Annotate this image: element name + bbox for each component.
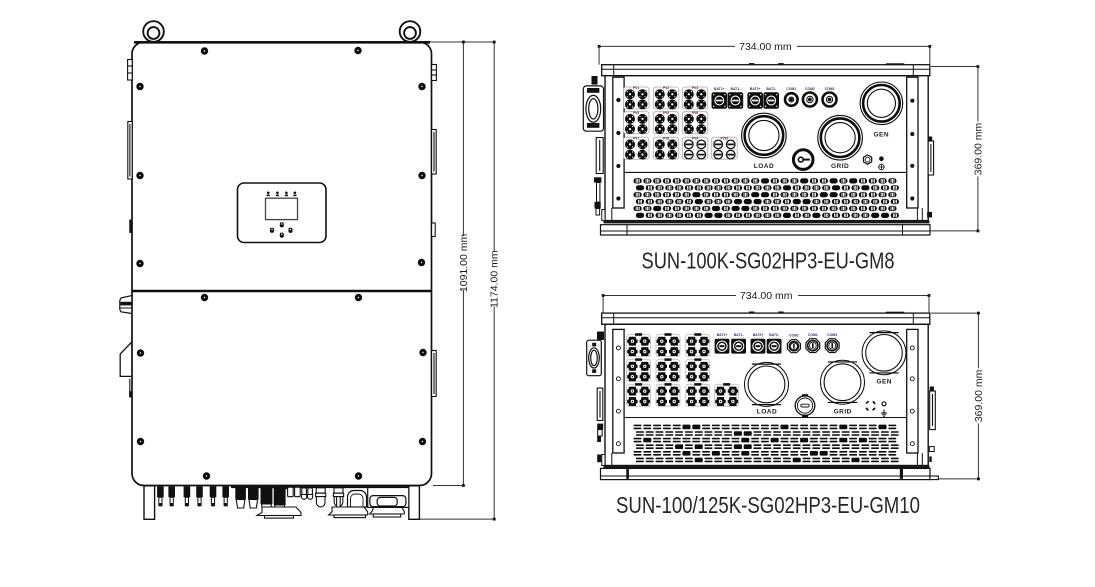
svg-text:BAT2-: BAT2- xyxy=(769,333,779,337)
svg-text:PV5: PV5 xyxy=(663,111,669,115)
svg-text:COM3: COM3 xyxy=(827,333,837,337)
svg-text:PV1: PV1 xyxy=(633,86,639,90)
svg-text:PV4: PV4 xyxy=(633,111,639,115)
svg-text:PV3: PV3 xyxy=(692,86,698,90)
svg-text:PV9: PV9 xyxy=(692,136,698,140)
svg-text:GRID: GRID xyxy=(831,163,849,170)
svg-text:PV2: PV2 xyxy=(663,86,669,90)
svg-text:SUN-100/125K-SG02HP3-EU-GM10: SUN-100/125K-SG02HP3-EU-GM10 xyxy=(616,492,920,518)
svg-text:BAT2+: BAT2+ xyxy=(753,333,764,337)
svg-text:COM2: COM2 xyxy=(805,87,815,91)
svg-text:PV8: PV8 xyxy=(663,136,669,140)
svg-text:LOAD: LOAD xyxy=(757,408,777,415)
svg-text:PV10: PV10 xyxy=(720,136,728,140)
svg-text:GRID: GRID xyxy=(834,408,852,415)
svg-text:COM2: COM2 xyxy=(808,333,818,337)
svg-text:1091.00 mm: 1091.00 mm xyxy=(458,233,470,292)
svg-text:369.00 mm: 369.00 mm xyxy=(973,369,985,422)
svg-text:PV7: PV7 xyxy=(633,136,639,140)
svg-text:BAT2-: BAT2- xyxy=(766,87,776,91)
svg-text:COM1: COM1 xyxy=(786,87,796,91)
svg-text:LOAD: LOAD xyxy=(754,163,774,170)
svg-text:BAT2+: BAT2+ xyxy=(750,87,761,91)
svg-text:PV6: PV6 xyxy=(692,111,698,115)
svg-text:BAT1-: BAT1- xyxy=(734,333,744,337)
svg-text:BAT1+: BAT1+ xyxy=(717,333,728,337)
svg-text:734.00 mm: 734.00 mm xyxy=(740,290,793,302)
svg-text:COM1: COM1 xyxy=(789,334,799,338)
svg-text:COM3: COM3 xyxy=(825,87,835,91)
svg-text:BAT1+: BAT1+ xyxy=(714,87,725,91)
svg-text:GEN: GEN xyxy=(876,378,892,385)
svg-text:BAT1-: BAT1- xyxy=(731,87,741,91)
svg-text:GEN: GEN xyxy=(874,131,890,138)
svg-text:734.00 mm: 734.00 mm xyxy=(739,41,792,53)
svg-text:1174.00 mm: 1174.00 mm xyxy=(489,250,501,308)
svg-text:SUN-100K-SG02HP3-EU-GM8: SUN-100K-SG02HP3-EU-GM8 xyxy=(642,248,895,274)
svg-text:369.00 mm: 369.00 mm xyxy=(972,122,984,175)
